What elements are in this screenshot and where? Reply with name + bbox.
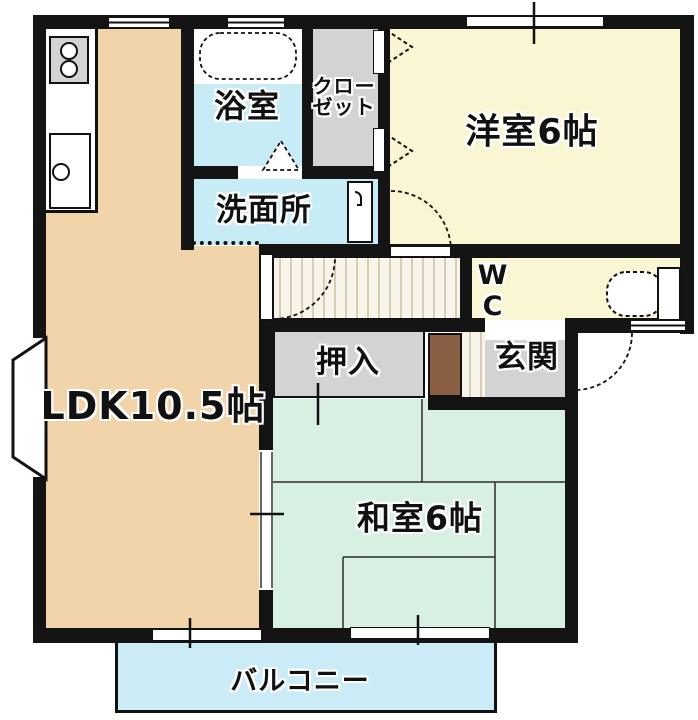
shoe-cabinet (428, 333, 462, 397)
bath-door-gap (238, 166, 302, 179)
label-balcony: バルコニー (230, 668, 369, 696)
wall-entrance-bottom (428, 397, 578, 410)
western-room-door-leaf (390, 246, 451, 257)
wall-right-upper (680, 15, 694, 334)
stove-icon (49, 36, 89, 84)
label-wc-line2: C (483, 291, 504, 322)
window-bath-top (227, 17, 285, 28)
label-closet-line2: ゼット (313, 95, 376, 119)
bathtub-area (194, 28, 302, 84)
wall-bottom (33, 628, 578, 643)
label-bath: 浴室 (214, 90, 280, 124)
label-washroom: 洗面所 (216, 195, 312, 228)
entrance-door-arc (575, 333, 632, 390)
label-wc: W C (478, 260, 509, 322)
label-oshiire: 押入 (316, 347, 380, 380)
window-kitchen-top (108, 17, 170, 28)
label-closet: クロー ゼット (313, 76, 376, 118)
wall-hallway-bottom (259, 318, 485, 332)
wall-bath-closet-divider (302, 15, 313, 173)
window-japanese-balcony (350, 627, 490, 639)
entrance-front-door (630, 320, 686, 331)
wall-left-lower (33, 477, 46, 643)
window-ldk-balcony (152, 629, 262, 641)
washing-machine-space (347, 181, 373, 243)
label-wc-line1: W (478, 260, 509, 291)
label-japanese-room: 和室6帖 (357, 502, 483, 537)
closet-door-panel-bottom (373, 128, 385, 172)
label-ldk: LDK10.5帖 (41, 387, 266, 427)
hallway-floor (259, 256, 460, 320)
sink-icon (49, 133, 91, 209)
washroom-open-boundary (192, 241, 259, 245)
wall-left-upper (33, 15, 46, 338)
label-western-room: 洋室6帖 (465, 115, 598, 152)
wall-ldk-bath-divider (181, 15, 194, 250)
threshold-opening (260, 450, 273, 590)
closet-door-panel-top (373, 30, 385, 74)
wall-japanese-right (565, 318, 578, 643)
label-entrance: 玄関 (495, 342, 559, 375)
wall-wc-left (460, 252, 472, 320)
room-ldk-floor-dining (181, 246, 259, 630)
window-western-top (466, 16, 604, 27)
floor-plan: LDK10.5帖 洋室6帖 和室6帖 浴室 洗面所 クロー ゼット 押入 玄関 … (0, 0, 698, 720)
